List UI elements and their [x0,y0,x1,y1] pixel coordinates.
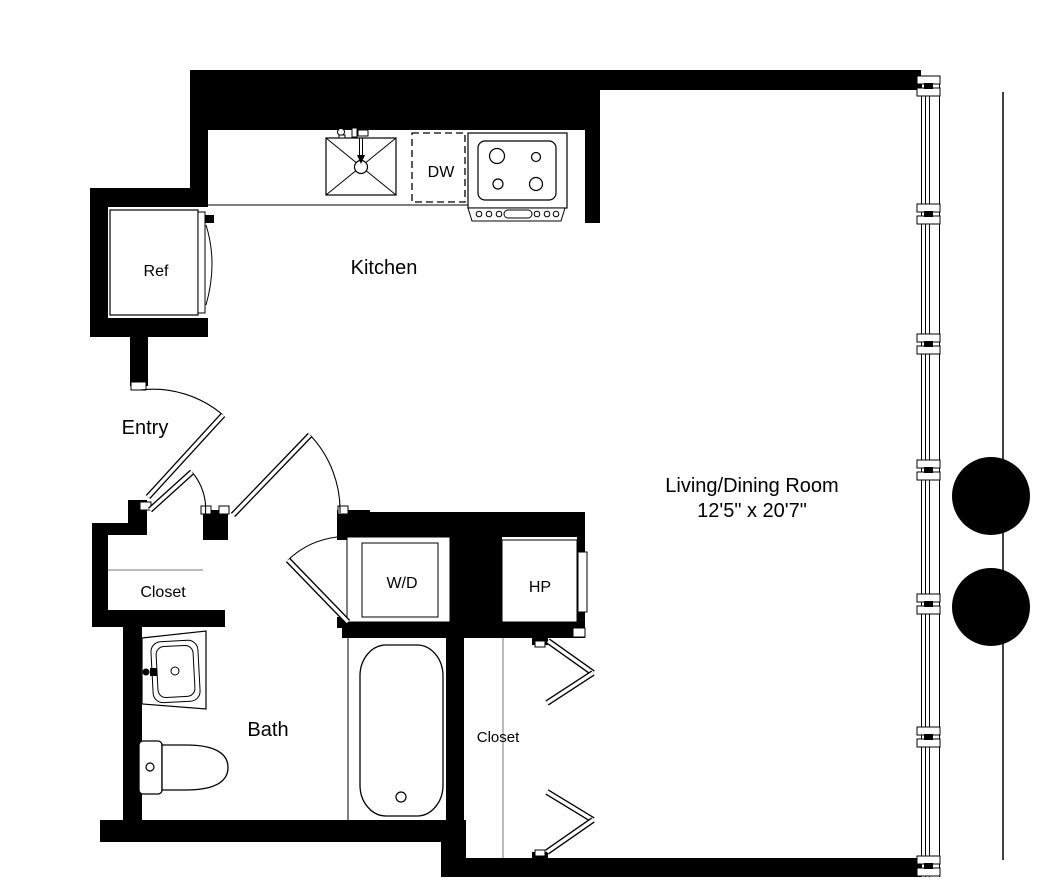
soap-dispenser-base [339,135,345,138]
tub [360,645,443,816]
stove-knob [553,211,559,217]
bathtub [348,635,443,820]
room-label-entry: Entry [122,417,169,439]
washer-dryer-label: W/D [386,575,417,592]
wall-top-kitchen [190,70,585,130]
room-dimensions-living-dining: 12'5" x 20'7" [697,500,807,522]
vanity-drain [171,667,179,675]
jamb-notch [573,628,585,637]
dishwasher: DW [412,133,465,202]
wall-wd-hp-divider [450,537,502,625]
refrigerator: Ref [110,210,214,315]
refrigerator-door [198,212,205,313]
wall-bath-bottom [100,820,466,842]
hp-access-panel [578,552,587,612]
refrigerator-label: Ref [144,263,169,280]
bifold-notch [535,850,545,856]
stove-knob [544,211,550,217]
wall-ref-left [90,188,108,337]
floor-plan-drawing: Ref DW [0,0,1053,895]
structural-column [952,568,1030,646]
bifold-notch [535,641,545,647]
burner [532,153,541,162]
heat-pump-label: HP [529,579,551,596]
tub-drain [396,792,406,802]
wall-wd-top [342,512,585,537]
floor-plan: Ref DW [0,0,1053,895]
refrigerator-handle [205,215,214,223]
stove-knob [534,211,540,217]
structural-column [952,457,1030,535]
vanity-faucet-icon [143,669,150,676]
toilet-bowl [162,745,228,790]
stove-cooktop-panel [478,141,556,200]
room-label-living-dining: Living/Dining Room [665,475,838,497]
dishwasher-label: DW [428,164,456,181]
wall-closet-bottom [92,610,225,627]
vanity-sink [142,631,206,709]
burner [493,179,503,189]
wall-bottom-main [443,858,921,877]
room-label-entry-closet: Closet [140,584,186,601]
soap-dispenser-icon [338,129,345,136]
burner [530,178,543,191]
stove-knob [476,211,482,217]
kitchen-sink [326,128,396,195]
wall-bath-left [123,627,142,842]
room-label-hall-closet: Closet [477,729,520,746]
stove-knob [496,211,502,217]
stove-handle [504,210,532,218]
wall-top-living [585,70,921,90]
toilet [139,741,228,794]
faucet-body-icon [358,130,368,136]
wall-entry-stub [130,337,148,386]
vanity-faucet-body [150,668,157,676]
stove [468,133,567,221]
stove-knob [486,211,492,217]
entry-stub-endplate [131,382,146,390]
toilet-flush-button [146,763,154,771]
room-label-bath: Bath [247,719,288,741]
wall-kitchen-left [190,130,208,190]
jamb-notch [219,506,229,514]
faucet-handle-icon [352,128,357,137]
burner [490,149,505,164]
wall-ref-bottom [90,318,208,337]
room-label-kitchen: Kitchen [351,257,418,279]
wall-right-of-stove [585,90,600,223]
